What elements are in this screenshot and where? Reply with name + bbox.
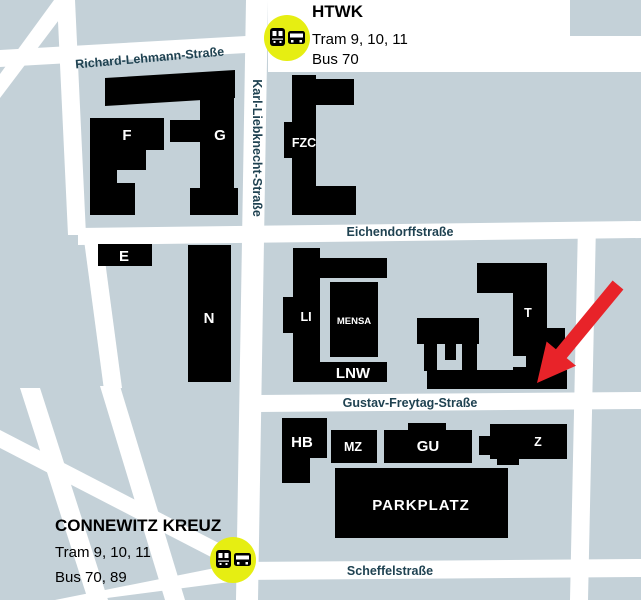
stop-connewitz-name: CONNEWITZ KREUZ — [55, 516, 221, 535]
building-fzc-bottom-arm — [316, 186, 356, 215]
building-g-arm — [170, 120, 202, 142]
stop-connewitz-bus: Bus 70, 89 — [55, 569, 127, 586]
building-li-nub — [283, 297, 293, 333]
building-li-top-arm — [320, 258, 387, 278]
label-building-mz: MZ — [344, 440, 362, 454]
label-building-t: T — [524, 306, 532, 320]
campus-map: F G E N FZC LI MENSA LNW T HB MZ GU Z PA… — [0, 0, 641, 600]
stop-htwk-name: HTWK — [312, 2, 364, 21]
building-t-notch — [513, 356, 526, 367]
stop-connewitz-tram: Tram 9, 10, 11 — [55, 544, 151, 561]
label-building-fzc: FZC — [292, 136, 316, 150]
label-building-gu: GU — [417, 438, 440, 455]
label-building-e: E — [119, 248, 129, 265]
label-building-g: G — [214, 127, 226, 144]
map-canvas: F G E N FZC LI MENSA LNW T HB MZ GU Z PA… — [0, 0, 641, 600]
block-top-right-corner — [570, 0, 641, 36]
building-fzc-nub — [284, 122, 292, 158]
label-building-z: Z — [534, 435, 542, 449]
building-comb-leg1 — [424, 344, 437, 371]
stop-htwk-tram: Tram 9, 10, 11 — [312, 31, 408, 48]
label-street-scheffel: Scheffelstraße — [347, 564, 433, 578]
building-f-stub — [112, 148, 146, 170]
label-building-lnw: LNW — [336, 365, 371, 382]
bus-icon — [234, 553, 251, 566]
label-building-li: LI — [300, 310, 311, 324]
tram-icon — [270, 28, 285, 46]
label-street-karl-liebknecht: Karl-Liebknecht-Straße — [250, 79, 264, 217]
stop-htwk-bus: Bus 70 — [312, 51, 359, 68]
tram-icon — [216, 550, 231, 568]
bus-icon — [288, 31, 305, 44]
building-comb-leg3 — [462, 344, 477, 371]
building-comb-bar — [417, 318, 479, 344]
label-building-mensa: MENSA — [337, 316, 371, 327]
building-fzc-top-arm — [316, 79, 354, 105]
label-street-eichendorff: Eichendorffstraße — [347, 225, 454, 239]
building-g-column — [200, 96, 234, 198]
building-z-step — [497, 459, 519, 465]
building-g-foot — [190, 188, 238, 215]
label-building-n: N — [204, 310, 215, 327]
label-street-gustav-freytag: Gustav-Freytag-Straße — [343, 396, 478, 410]
building-comb-leg2 — [445, 344, 456, 360]
label-building-parkplatz: PARKPLATZ — [372, 497, 470, 514]
building-f-foot — [105, 183, 135, 215]
label-building-hb: HB — [291, 434, 313, 451]
building-z — [490, 424, 567, 459]
label-building-f: F — [122, 127, 131, 144]
building-z-nub — [479, 436, 492, 455]
